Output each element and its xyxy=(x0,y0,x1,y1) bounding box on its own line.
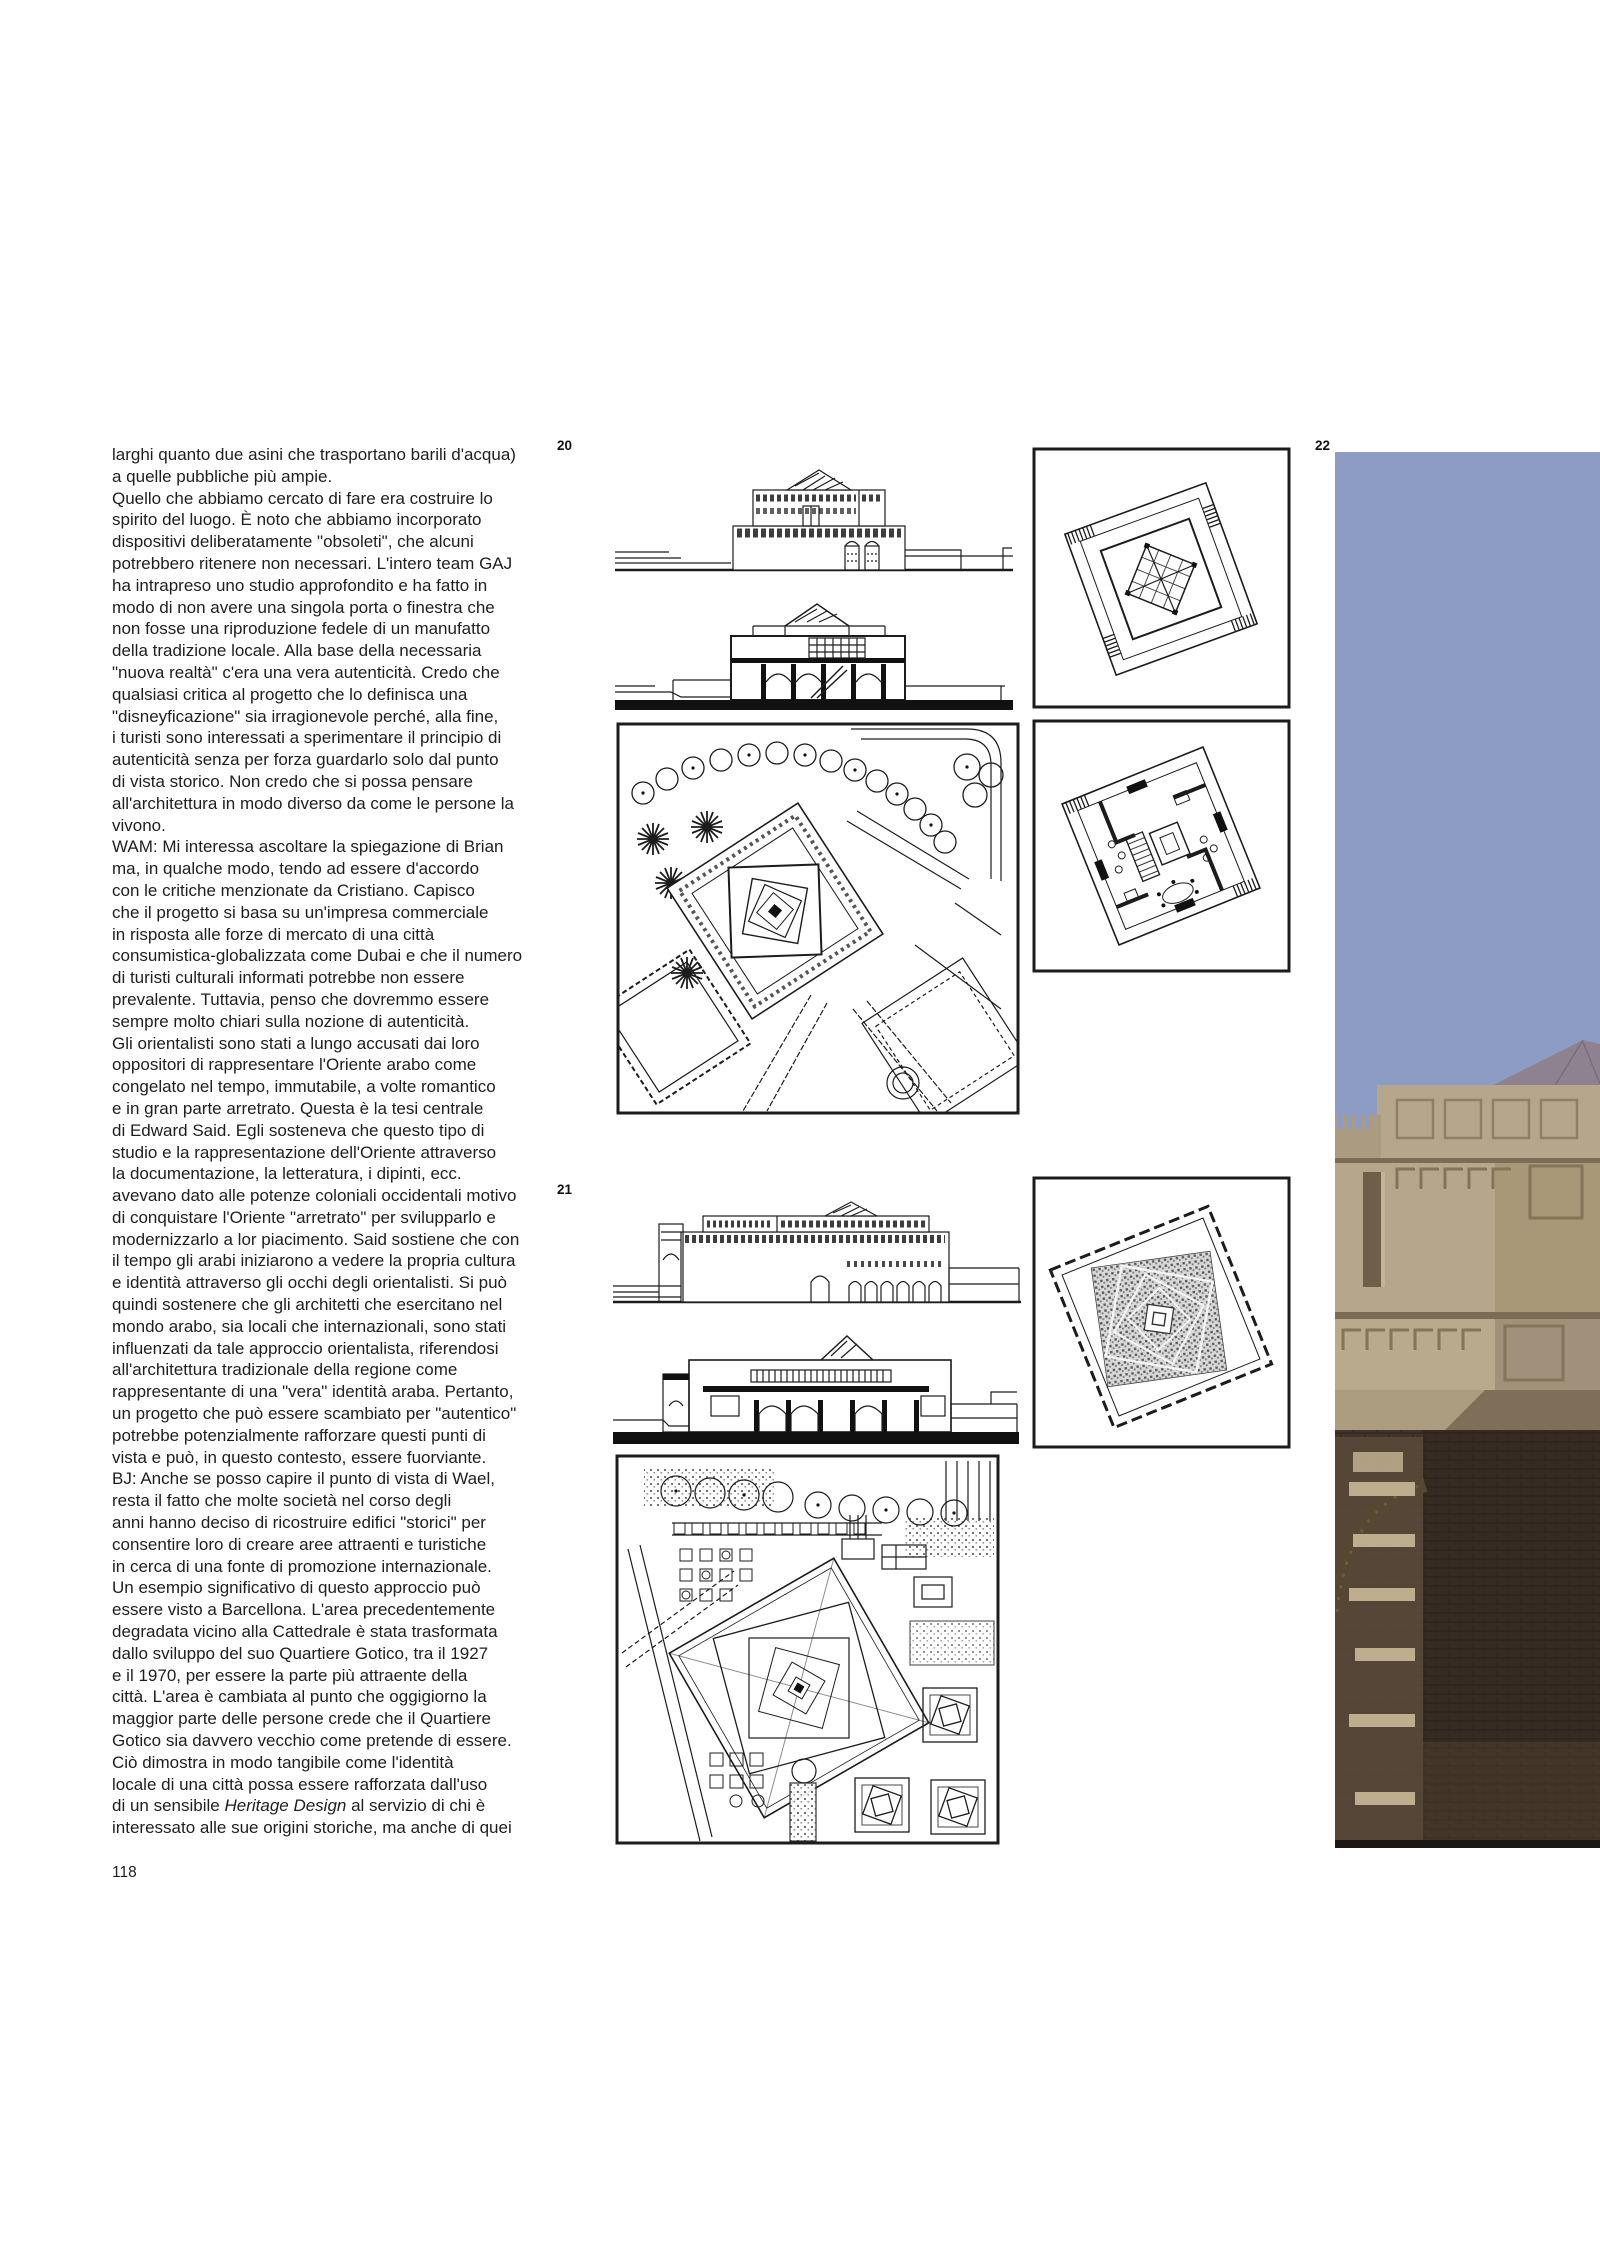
fig20-siteplan-drawing xyxy=(615,721,1022,1117)
page-number: 118 xyxy=(112,1864,137,1882)
figure-20-label: 20 xyxy=(557,438,572,453)
fig20-elevation-drawing xyxy=(613,460,1015,580)
fig20-section-drawing xyxy=(613,594,1015,716)
fig21-elevation-drawing xyxy=(611,1198,1023,1308)
roofplan-box-a-drawing xyxy=(1031,446,1292,710)
figure-22-label: 22 xyxy=(1315,438,1330,453)
roofplan-box-c-drawing xyxy=(1031,1175,1292,1450)
fig21-siteplan-drawing xyxy=(614,1453,1002,1847)
article-text-part1: larghi quanto due asini che trasportano … xyxy=(112,445,522,1815)
figure-21-label: 21 xyxy=(557,1182,572,1197)
magazine-page: larghi quanto due asini che trasportano … xyxy=(0,0,1600,2264)
article-text-column: larghi quanto due asini che trasportano … xyxy=(112,444,590,1839)
building-photo xyxy=(1335,452,1600,1848)
floorplan-box-b-drawing xyxy=(1031,718,1292,974)
fig21-section-drawing xyxy=(611,1330,1023,1450)
article-italic-phrase: Heritage Design xyxy=(224,1796,346,1815)
